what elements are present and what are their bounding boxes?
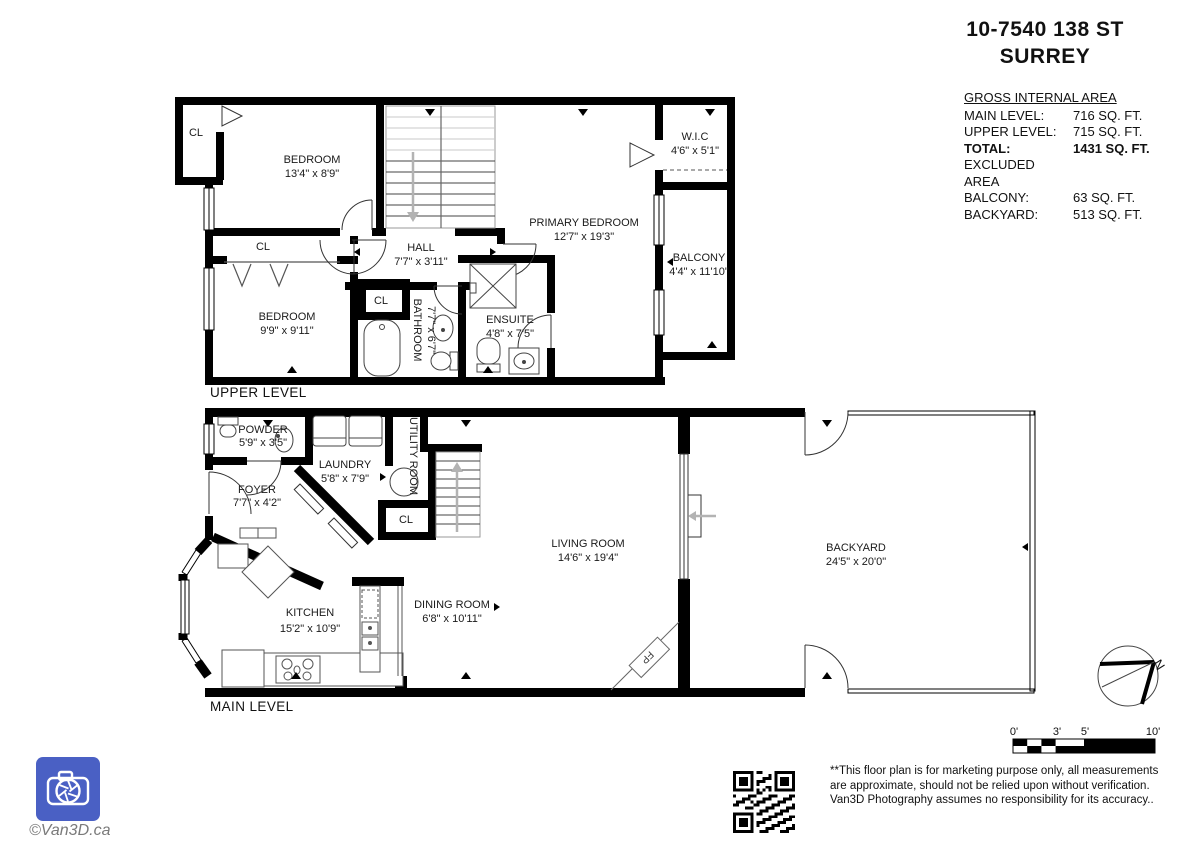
- bay-windows: [181, 550, 201, 663]
- room-dims-primary: 12'7" x 19'3": [554, 231, 614, 243]
- area-row-balcony: BALCONY: 63 SQ. FT.: [964, 190, 1174, 207]
- bifold-door-icon: [630, 143, 654, 167]
- area-row-total: TOTAL: 1431 SQ. FT.: [964, 141, 1174, 158]
- room-label-living: LIVING ROOM: [551, 538, 624, 550]
- main-level-plan: FP POWDER 5'9" x 3'5" LAUNDRY 5'8" x 7'9…: [181, 408, 1035, 714]
- room-dims-dining: 6'8" x 10'11": [422, 613, 482, 625]
- van3d-logo: [36, 757, 100, 821]
- scale-label-3: 3': [1053, 726, 1061, 738]
- room-dims-bedroom1: 13'4" x 8'9": [285, 168, 339, 180]
- address-line2: SURREY: [930, 43, 1160, 70]
- foyer-bench: [240, 528, 276, 538]
- area-row-main-level: MAIN LEVEL: 716 SQ. FT.: [964, 108, 1174, 125]
- room-label-balcony: BALCONY: [673, 252, 726, 264]
- compass-icon: N: [1098, 646, 1168, 706]
- scale-label-5: 5': [1081, 726, 1089, 738]
- staircase-main: [436, 452, 480, 537]
- room-dims-balcony: 4'4" x 11'10": [669, 266, 729, 278]
- disclaimer-text: **This floor plan is for marketing purpo…: [830, 764, 1175, 808]
- area-summary-title: GROSS INTERNAL AREA: [964, 90, 1174, 107]
- room-label-foyer: FOYER: [238, 484, 276, 496]
- room-label-closet-mid: CL: [256, 241, 270, 253]
- room-dims-backyard: 24'5" x 20'0": [826, 556, 886, 568]
- laundry-appliances: [313, 416, 382, 446]
- room-dims-wic: 4'6" x 5'1": [671, 145, 719, 157]
- page-title: 10-7540 138 ST SURREY: [930, 16, 1160, 70]
- bifold-door-icon: [222, 106, 242, 126]
- kitchen-fixtures: [222, 586, 403, 687]
- room-label-backyard: BACKYARD: [826, 542, 886, 554]
- room-label-wic: W.I.C: [682, 131, 709, 143]
- area-row-backyard: BACKYARD: 513 SQ. FT.: [964, 207, 1174, 224]
- room-label-kitchen: KITCHEN: [286, 607, 334, 619]
- address-line1: 10-7540 138 ST: [930, 16, 1160, 43]
- room-label-laundry: LAUNDRY: [319, 459, 372, 471]
- room-dims-foyer: 7'7" x 4'2": [233, 497, 281, 509]
- upper-level-label: UPPER LEVEL: [210, 385, 307, 400]
- room-label-primary: PRIMARY BEDROOM: [529, 217, 639, 229]
- main-level-label: MAIN LEVEL: [210, 699, 294, 714]
- room-label-closet-main: CL: [399, 514, 413, 526]
- room-label-dining: DINING ROOM: [414, 599, 490, 611]
- upper-level-plan: CL BEDROOM 13'4" x 8'9" CL BEDROOM 9'9" …: [175, 97, 735, 400]
- fireplace-icon: FP: [611, 622, 679, 690]
- floor-plan-page: { "header": { "address_line1": "10-7540 …: [0, 0, 1200, 848]
- room-dims-bathroom: 7'7" x 6'7": [425, 306, 437, 354]
- room-label-bedroom2: BEDROOM: [259, 311, 316, 323]
- sliding-door: [680, 454, 716, 579]
- room-dims-hall: 7'7" x 3'11": [394, 256, 447, 268]
- qr-code: [733, 771, 795, 833]
- copyright-text: ©Van3D.ca: [29, 822, 110, 840]
- closet-hangers-icon: [224, 262, 340, 286]
- camera-icon: [36, 757, 100, 821]
- scale-label-0: 0': [1010, 726, 1018, 738]
- room-label-bathroom: BATHROOM: [411, 299, 423, 362]
- room-dims-ensuite: 4'8" x 7'5": [486, 328, 534, 340]
- room-label-ensuite: ENSUITE: [486, 314, 534, 326]
- room-label-closet-small: CL: [374, 295, 388, 307]
- area-row-upper-level: UPPER LEVEL: 715 SQ. FT.: [964, 124, 1174, 141]
- staircase-upper: [386, 106, 495, 228]
- room-label-powder: POWDER: [238, 424, 288, 436]
- room-label-utility: UTILITY ROOM: [407, 417, 419, 495]
- room-dims-bedroom2: 9'9" x 9'11": [260, 325, 313, 337]
- room-dims-living: 14'6" x 19'4": [558, 552, 618, 564]
- room-label-closet-top: CL: [189, 127, 203, 139]
- scale-bar: 0' 3' 5' 10': [1010, 726, 1160, 753]
- room-dims-kitchen: 15'2" x 10'9": [280, 623, 340, 635]
- main-door-arcs: [209, 412, 848, 688]
- room-dims-powder: 5'9" x 3'5": [239, 437, 287, 449]
- room-label-hall: HALL: [407, 242, 435, 254]
- room-label-bedroom1: BEDROOM: [284, 154, 341, 166]
- area-summary: GROSS INTERNAL AREA MAIN LEVEL: 716 SQ. …: [964, 90, 1174, 223]
- area-row-excluded: EXCLUDED AREA: [964, 157, 1174, 190]
- bathroom-fixtures: [364, 315, 458, 376]
- room-dims-laundry: 5'8" x 7'9": [321, 473, 369, 485]
- scale-label-10: 10': [1146, 726, 1160, 738]
